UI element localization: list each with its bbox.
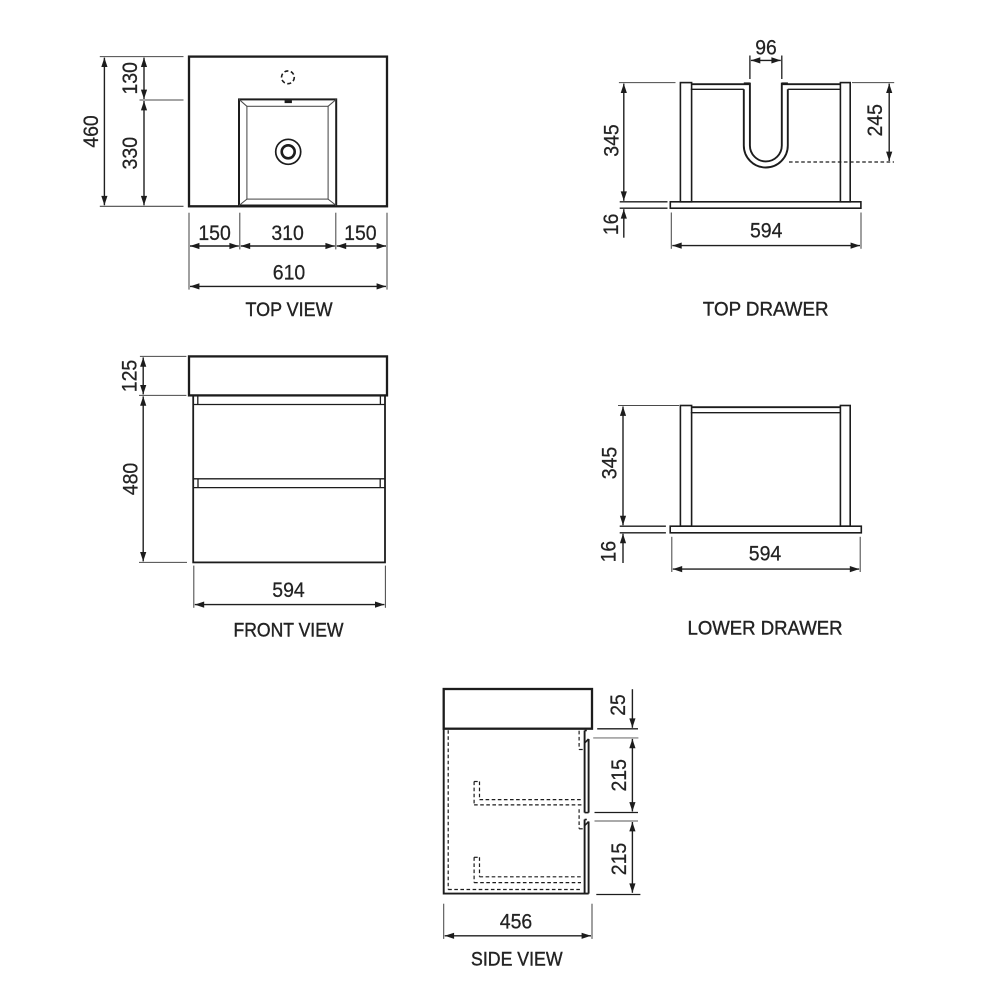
svg-text:16: 16 bbox=[597, 541, 621, 563]
svg-text:330: 330 bbox=[118, 137, 142, 170]
svg-text:480: 480 bbox=[118, 463, 142, 496]
svg-text:215: 215 bbox=[607, 759, 631, 792]
svg-text:594: 594 bbox=[750, 218, 783, 242]
svg-text:SIDE VIEW: SIDE VIEW bbox=[471, 948, 563, 970]
svg-text:215: 215 bbox=[607, 843, 631, 876]
svg-text:345: 345 bbox=[599, 124, 623, 157]
svg-text:310: 310 bbox=[271, 221, 304, 245]
svg-text:594: 594 bbox=[749, 542, 782, 566]
svg-text:125: 125 bbox=[117, 360, 141, 393]
svg-text:FRONT VIEW: FRONT VIEW bbox=[234, 619, 345, 641]
svg-text:16: 16 bbox=[599, 214, 623, 236]
svg-text:150: 150 bbox=[198, 221, 231, 245]
svg-text:245: 245 bbox=[863, 104, 887, 137]
svg-text:594: 594 bbox=[272, 578, 305, 602]
svg-text:LOWER DRAWER: LOWER DRAWER bbox=[688, 617, 843, 639]
svg-text:TOP VIEW: TOP VIEW bbox=[246, 299, 334, 321]
svg-text:TOP DRAWER: TOP DRAWER bbox=[703, 299, 829, 321]
svg-text:456: 456 bbox=[500, 909, 533, 933]
svg-text:150: 150 bbox=[344, 221, 377, 245]
svg-text:96: 96 bbox=[755, 36, 777, 60]
svg-text:460: 460 bbox=[79, 115, 103, 148]
svg-text:610: 610 bbox=[273, 260, 306, 284]
svg-text:25: 25 bbox=[606, 694, 630, 716]
svg-text:345: 345 bbox=[597, 447, 621, 480]
svg-text:130: 130 bbox=[118, 62, 142, 95]
